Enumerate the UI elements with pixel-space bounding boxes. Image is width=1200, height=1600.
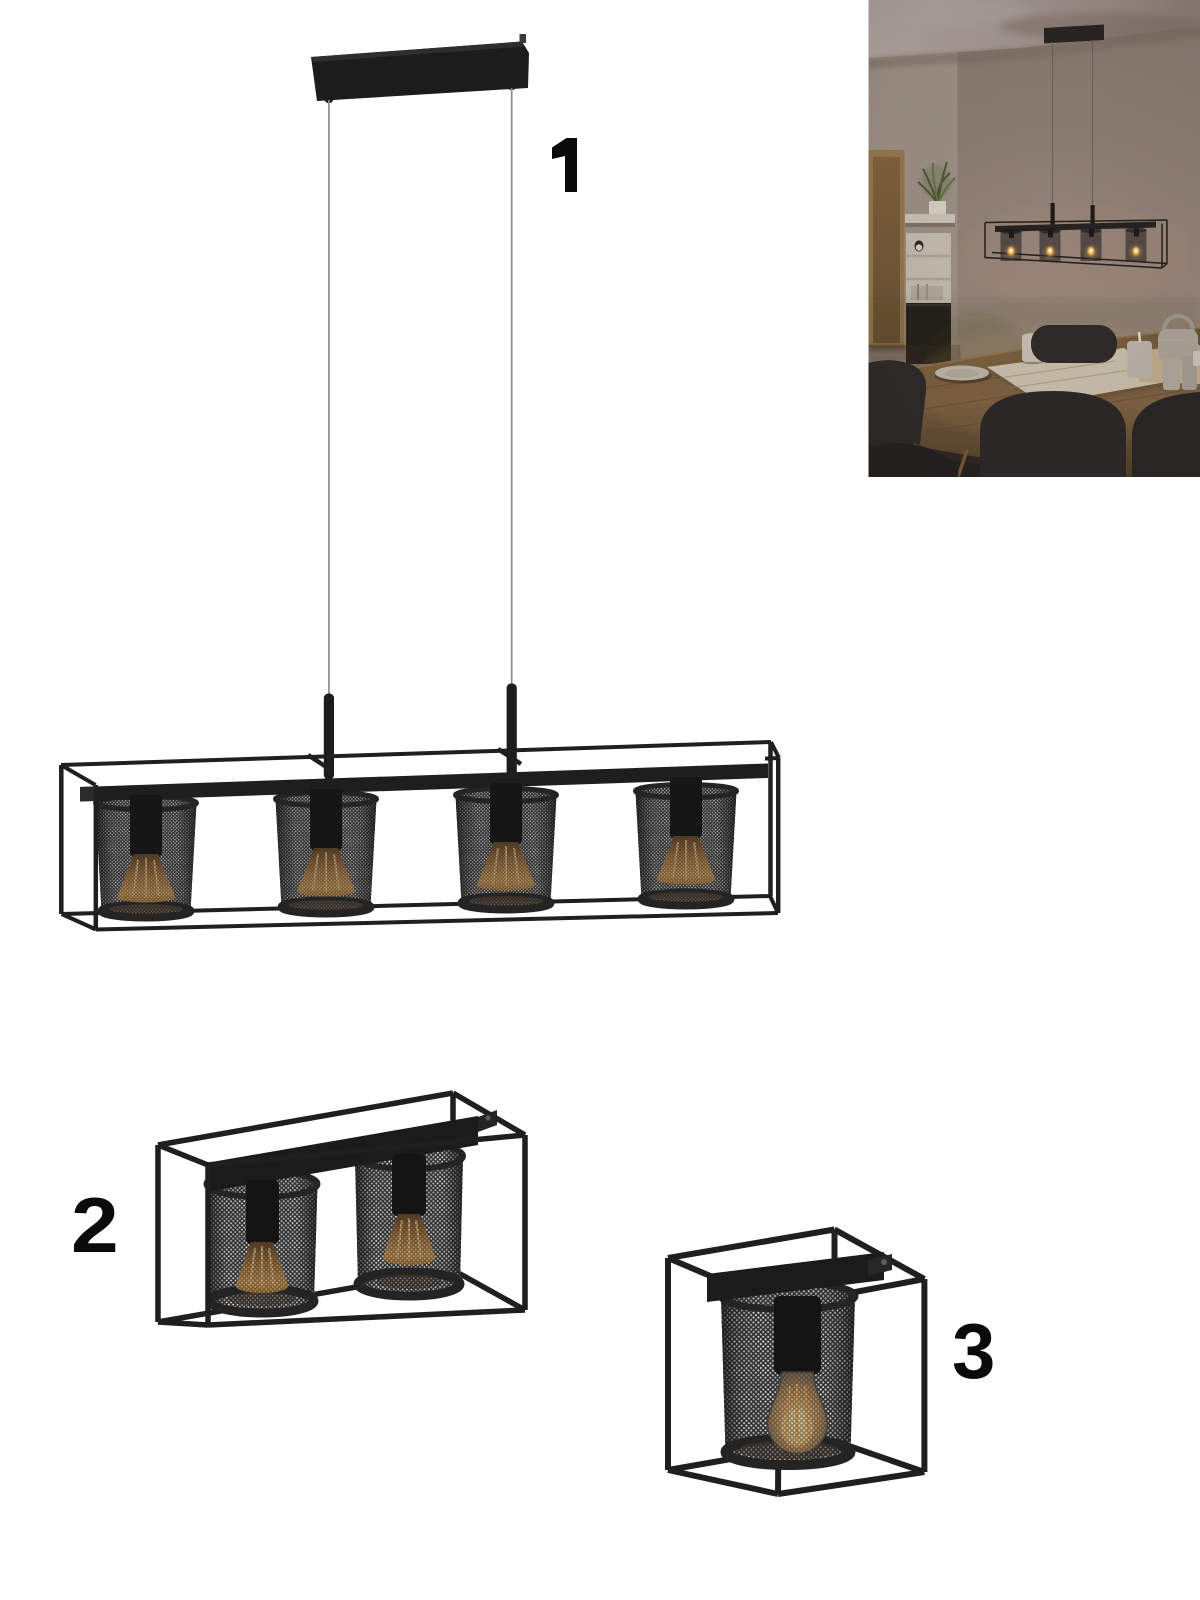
svg-text:3: 3	[952, 1307, 995, 1395]
svg-text:2: 2	[71, 1183, 119, 1270]
